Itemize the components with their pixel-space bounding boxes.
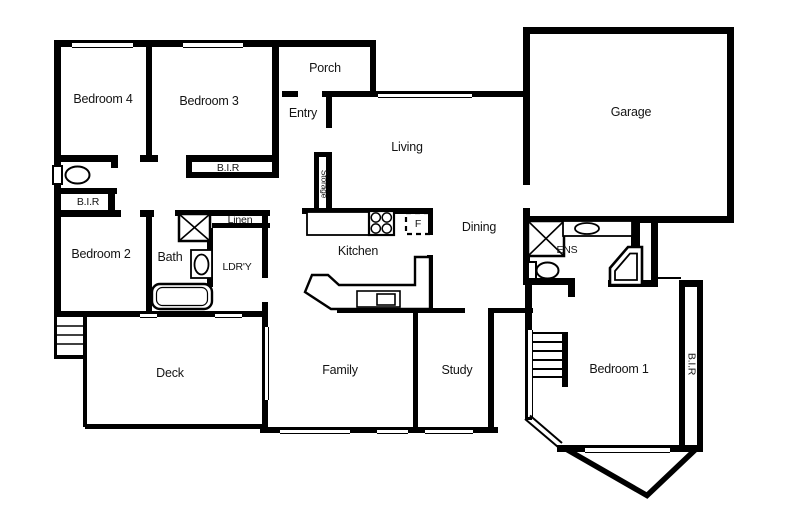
window — [183, 42, 243, 48]
wall — [427, 255, 433, 310]
closet-label-bir-bedroom3: B.I.R — [217, 163, 239, 174]
window — [215, 313, 242, 318]
wall — [272, 40, 279, 178]
room-label-entry: Entry — [289, 107, 317, 120]
wall — [146, 217, 152, 312]
room-label-bath: Bath — [158, 251, 183, 264]
closet-label-bir-bedroom1: B.I.R — [686, 353, 697, 375]
wall — [262, 210, 268, 278]
room-label-ens: ENS — [557, 245, 578, 256]
room-label-garage: Garage — [611, 106, 652, 119]
window — [377, 429, 408, 434]
wall — [697, 280, 703, 447]
wall — [568, 285, 575, 297]
wall — [140, 155, 158, 162]
room-label-study: Study — [442, 364, 473, 377]
kitchen-counter-icon — [307, 212, 370, 235]
room-label-bedroom3: Bedroom 3 — [179, 95, 238, 108]
wall — [54, 210, 121, 217]
wall — [523, 278, 575, 285]
room-label-dining: Dining — [462, 221, 496, 234]
room-label-laundry: LDR'Y — [222, 262, 251, 273]
wall — [370, 40, 376, 94]
closet-label-bir-hall: B.I.R — [77, 197, 99, 208]
floor-plan: Bedroom 4 Bedroom 3 Porch Entry Living G… — [0, 0, 790, 527]
room-label-deck: Deck — [156, 367, 184, 380]
room-label-living: Living — [391, 141, 422, 154]
wall — [326, 97, 332, 128]
ens-toilet-icon — [528, 262, 559, 279]
wall — [175, 210, 270, 216]
wall — [85, 424, 267, 429]
shower-icon — [179, 214, 210, 241]
wall — [54, 155, 118, 162]
cooktop-icon — [369, 211, 394, 235]
wall — [727, 27, 734, 223]
wall — [488, 308, 494, 432]
wall — [523, 208, 530, 285]
ens-vanity-icon — [563, 221, 632, 236]
wall — [146, 47, 152, 157]
room-label-bedroom4: Bedroom 4 — [73, 93, 132, 106]
wall — [54, 40, 61, 317]
window — [280, 429, 350, 434]
wall — [302, 208, 433, 214]
wall — [523, 34, 530, 185]
wall — [428, 208, 433, 235]
window — [264, 327, 269, 400]
wall — [631, 221, 640, 246]
wall — [523, 27, 734, 34]
wall — [314, 152, 332, 157]
wall — [282, 91, 298, 97]
wall — [111, 162, 118, 168]
room-label-family: Family — [322, 364, 358, 377]
room-label-kitchen: Kitchen — [338, 245, 378, 258]
deck-steps-icon — [54, 326, 83, 344]
wall — [140, 210, 154, 217]
wall — [314, 152, 319, 214]
bay-walls — [566, 449, 696, 496]
wall — [679, 287, 685, 447]
room-label-bedroom2: Bedroom 2 — [71, 248, 130, 261]
window — [527, 330, 533, 417]
window — [140, 313, 157, 318]
wall — [413, 308, 465, 313]
wall — [413, 313, 418, 432]
wall — [207, 228, 213, 287]
room-label-porch: Porch — [309, 62, 341, 75]
wall — [608, 280, 658, 287]
bathtub-icon — [152, 284, 212, 309]
wall — [523, 216, 734, 223]
wall — [651, 223, 658, 283]
fridge-label: F — [415, 218, 421, 229]
closet-label-storage: Storage — [320, 170, 329, 198]
wall — [83, 317, 87, 427]
room-label-bedroom1: Bedroom 1 — [589, 363, 648, 376]
closet-label-linen: Linen — [228, 215, 253, 226]
staircase-icon — [533, 333, 563, 377]
window — [378, 93, 472, 98]
bay-window-icon — [525, 416, 562, 448]
wall — [337, 307, 418, 313]
window — [425, 429, 473, 434]
window — [72, 42, 133, 48]
wall — [54, 355, 83, 359]
kitchen-island-icon — [305, 257, 430, 309]
wall — [54, 317, 57, 359]
window — [585, 447, 670, 453]
wall — [562, 332, 568, 387]
wall — [655, 277, 681, 279]
